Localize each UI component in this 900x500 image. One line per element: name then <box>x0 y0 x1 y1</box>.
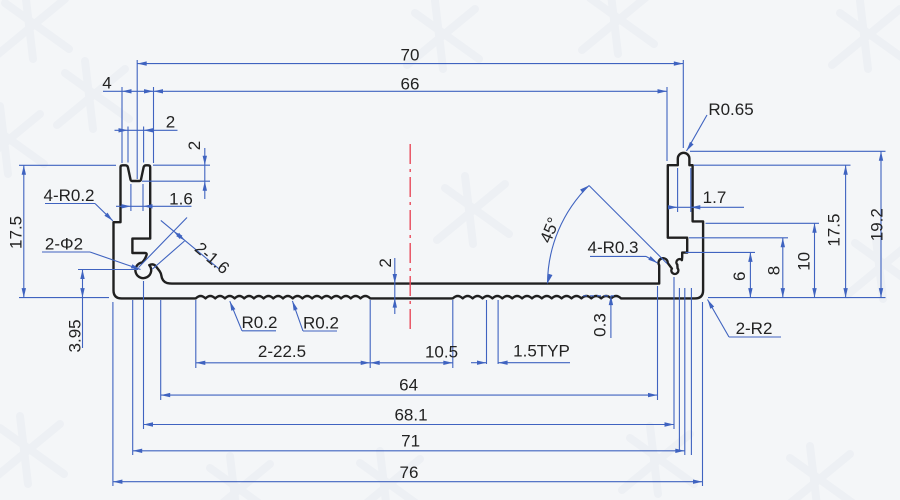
svg-text:4-R0.2: 4-R0.2 <box>43 186 94 205</box>
svg-text:66: 66 <box>401 74 420 93</box>
svg-text:3.95: 3.95 <box>66 319 85 352</box>
svg-text:10.5: 10.5 <box>425 343 458 362</box>
svg-text:19.2: 19.2 <box>868 208 887 241</box>
svg-text:1.7: 1.7 <box>703 188 727 207</box>
svg-text:2-22.5: 2-22.5 <box>258 342 306 361</box>
svg-text:17.5: 17.5 <box>7 216 26 249</box>
svg-text:4-R0.3: 4-R0.3 <box>587 238 638 257</box>
svg-text:R0.2: R0.2 <box>242 313 278 332</box>
svg-text:76: 76 <box>400 463 419 482</box>
svg-text:71: 71 <box>401 432 420 451</box>
svg-text:1.6: 1.6 <box>169 189 193 208</box>
svg-text:68.1: 68.1 <box>394 406 427 425</box>
svg-text:2-Φ2: 2-Φ2 <box>45 235 83 254</box>
svg-text:10: 10 <box>795 252 814 271</box>
svg-text:2: 2 <box>185 141 204 150</box>
svg-text:2: 2 <box>166 113 175 132</box>
svg-text:1.5TYP: 1.5TYP <box>513 342 570 361</box>
svg-text:R0.2: R0.2 <box>303 313 339 332</box>
svg-text:R0.65: R0.65 <box>708 100 753 119</box>
svg-text:2: 2 <box>376 258 395 267</box>
svg-text:0.3: 0.3 <box>590 313 609 337</box>
svg-text:8: 8 <box>765 266 784 275</box>
svg-text:4: 4 <box>102 74 111 93</box>
svg-text:6: 6 <box>730 272 749 281</box>
svg-text:70: 70 <box>401 46 420 65</box>
svg-text:64: 64 <box>399 375 418 394</box>
svg-text:2-R2: 2-R2 <box>736 319 773 338</box>
svg-text:17.5: 17.5 <box>825 214 844 247</box>
